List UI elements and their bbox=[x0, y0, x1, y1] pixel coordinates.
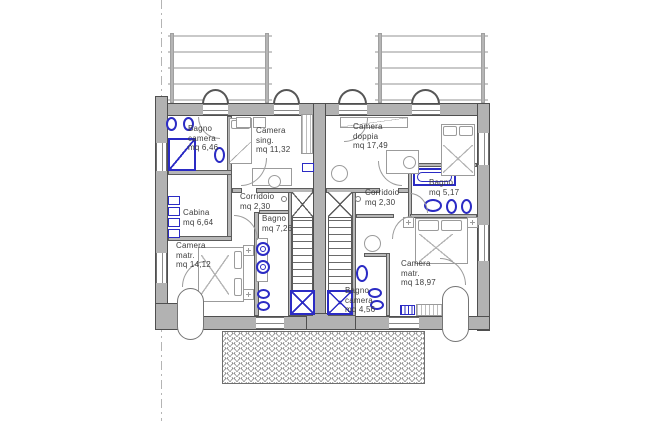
room-label-camera-matr-left: Cameramatr.mq 14,12 bbox=[176, 241, 211, 270]
stair-winder bbox=[292, 192, 313, 218]
closet-shelf-icon bbox=[168, 207, 180, 216]
room-label-camera-matr-right: Cameramatr.mq 18,97 bbox=[401, 259, 436, 288]
pillow bbox=[443, 126, 457, 136]
sink-icon bbox=[256, 242, 270, 256]
bidet-icon bbox=[257, 301, 270, 311]
room-label-bagno-camera-left: Bagnocameramq 6,46 bbox=[188, 124, 218, 153]
wardrobe bbox=[301, 114, 313, 154]
door-arc bbox=[410, 193, 428, 213]
shower-icon bbox=[290, 290, 315, 315]
toilet-icon bbox=[446, 199, 457, 214]
pillow bbox=[459, 126, 473, 136]
wall-unit-icon bbox=[302, 163, 314, 172]
pillow bbox=[234, 278, 242, 296]
door-pivot-icon bbox=[281, 196, 287, 202]
arched-window-head bbox=[273, 89, 300, 104]
room-label-bagno-left: Bagnomq 7,26 bbox=[262, 214, 292, 233]
window bbox=[156, 253, 167, 283]
railing-bar bbox=[168, 35, 272, 37]
pillow bbox=[418, 220, 439, 231]
curved-door-bay bbox=[442, 286, 469, 342]
window bbox=[478, 225, 489, 261]
wardrobe bbox=[416, 304, 444, 316]
room-label-bagno-camera-right: Bagnocameramq 4,56 bbox=[345, 286, 375, 315]
partition bbox=[386, 253, 390, 316]
party-wall bbox=[313, 103, 326, 315]
dresser bbox=[236, 117, 251, 128]
pillow bbox=[441, 220, 462, 231]
wall-bottom-left-corner bbox=[155, 303, 179, 330]
nightstand bbox=[243, 289, 254, 300]
room-label-corridoio-left: Corridoiomq 2,30 bbox=[240, 192, 274, 211]
door-arc bbox=[378, 161, 402, 186]
toilet-icon bbox=[257, 289, 270, 299]
stair-winder bbox=[328, 192, 352, 218]
toilet-icon bbox=[166, 117, 177, 131]
chair bbox=[403, 156, 416, 169]
window bbox=[412, 104, 440, 115]
room-label-camera-doppia: Cameradoppiamq 17,49 bbox=[353, 122, 388, 151]
curved-door-bay bbox=[177, 288, 204, 340]
radiator-icon bbox=[400, 305, 415, 315]
window bbox=[339, 104, 367, 115]
railing-post bbox=[170, 33, 174, 103]
closet-shelf-icon bbox=[168, 229, 180, 238]
pillow bbox=[234, 251, 242, 269]
floor-plan-drawing: Bagnocameramq 6,46 Camerasing.mq 11,32 C… bbox=[0, 0, 651, 421]
window bbox=[156, 143, 167, 171]
closet-shelf-icon bbox=[168, 218, 180, 227]
room-label-corridoio-right: Corridoiomq 2,30 bbox=[365, 188, 399, 207]
bed-fold bbox=[443, 145, 473, 173]
bidet-icon bbox=[461, 199, 472, 214]
railing-bar bbox=[168, 51, 272, 53]
armchair bbox=[331, 165, 348, 182]
window bbox=[478, 133, 489, 165]
railing-bar bbox=[168, 83, 272, 85]
window bbox=[274, 104, 299, 115]
wall-left bbox=[155, 96, 168, 318]
door-pivot-icon bbox=[355, 196, 361, 202]
railing-bar bbox=[375, 35, 488, 37]
railing-bar bbox=[375, 67, 488, 69]
window bbox=[203, 104, 228, 115]
armchair bbox=[364, 235, 381, 252]
window bbox=[389, 317, 419, 329]
room-label-camera-singola: Camerasing.mq 11,32 bbox=[256, 126, 290, 155]
room-label-bagno-right: Bagnomq 5,17 bbox=[429, 178, 459, 197]
railing-post bbox=[481, 33, 485, 103]
railing-post bbox=[265, 33, 269, 103]
nightstand bbox=[243, 245, 254, 256]
chair bbox=[268, 175, 281, 188]
window bbox=[256, 317, 284, 329]
bed-fold bbox=[419, 234, 453, 262]
room-label-cabina: Cabinamq 6,64 bbox=[183, 208, 213, 227]
railing-bar bbox=[375, 83, 488, 85]
railing-bar bbox=[375, 51, 488, 53]
closet-shelf-icon bbox=[168, 196, 180, 205]
nightstand bbox=[467, 217, 478, 228]
sink-icon bbox=[356, 265, 368, 282]
sink-icon bbox=[256, 260, 270, 274]
partition bbox=[356, 214, 394, 218]
railing-post bbox=[378, 33, 382, 103]
door-arc bbox=[392, 216, 412, 239]
railing-bar bbox=[168, 67, 272, 69]
terrace-hatch bbox=[222, 331, 425, 384]
arched-window-head bbox=[338, 89, 367, 104]
